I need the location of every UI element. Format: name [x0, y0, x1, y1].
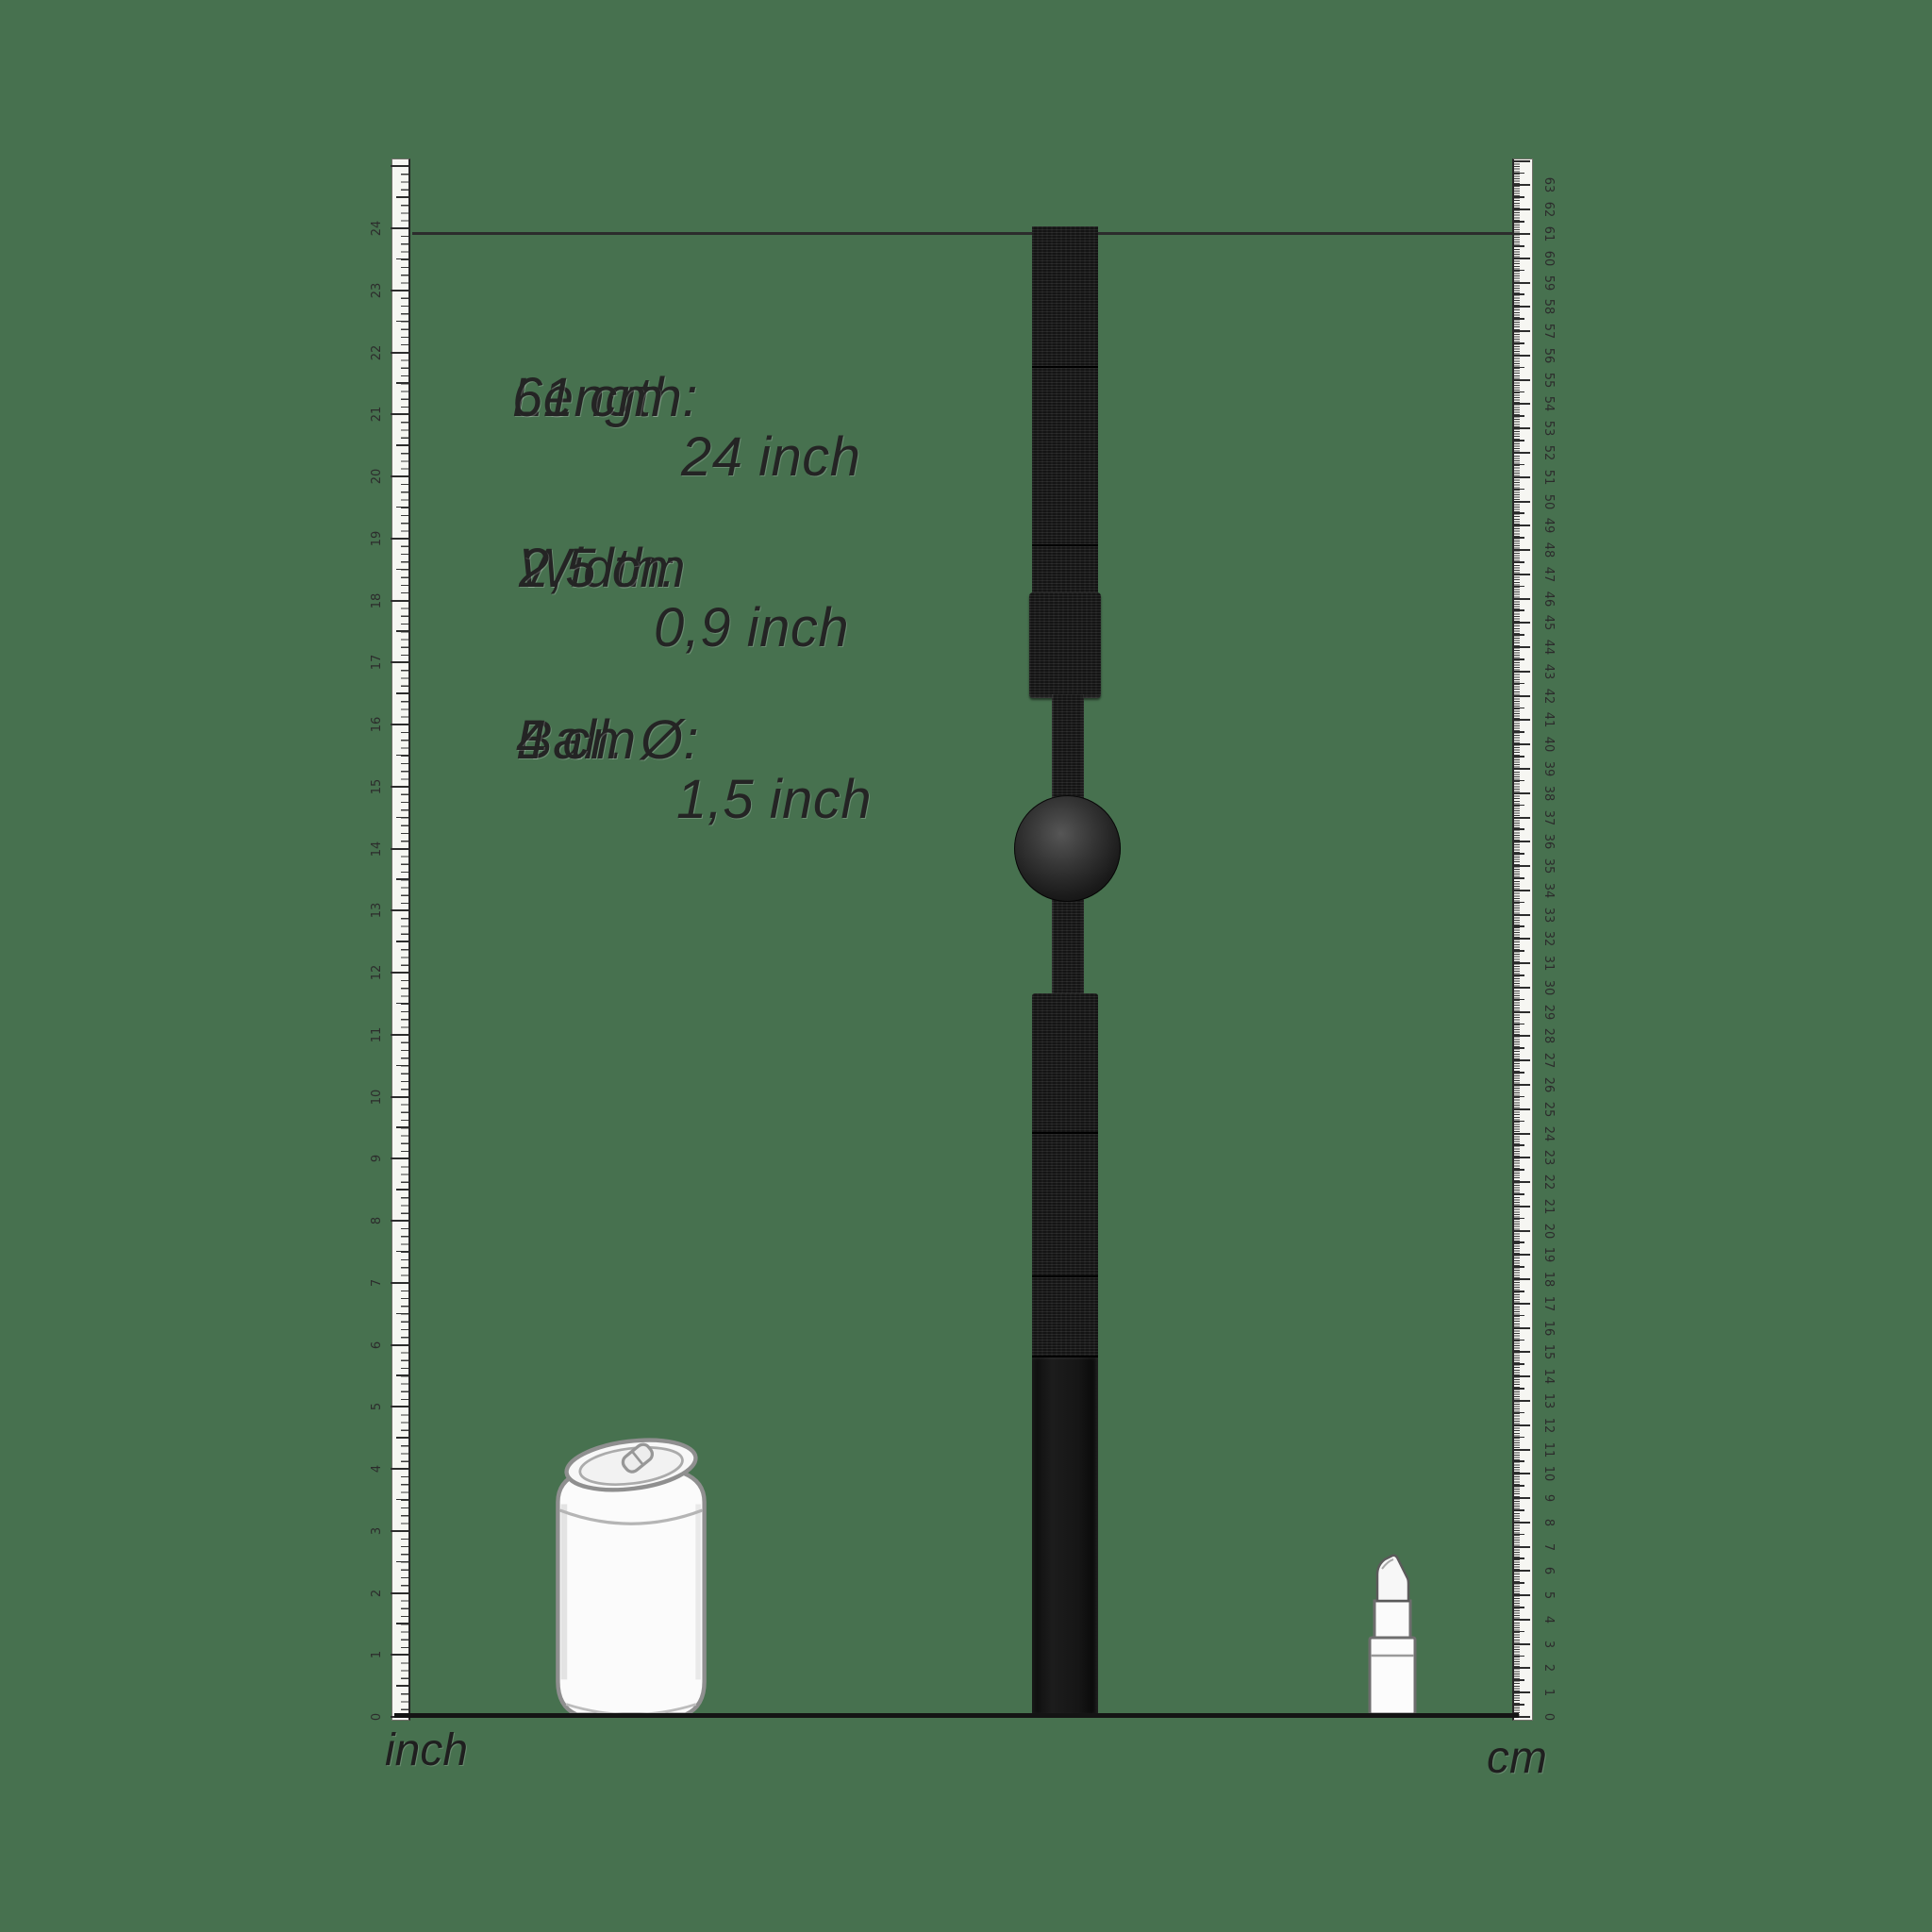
cm-halftick-3 [1514, 1631, 1524, 1633]
cm-halftick-59 [1514, 270, 1524, 272]
cm-ruler-number-10: 10 [1541, 1460, 1556, 1487]
cm-ruler-number-32: 32 [1541, 925, 1556, 952]
cm-tick-56 [1514, 355, 1530, 357]
cm-tick-41 [1514, 719, 1530, 721]
cm-ruler-number-29: 29 [1541, 999, 1556, 1025]
cm-ruler-number-39: 39 [1541, 756, 1556, 782]
cm-tick-27 [1514, 1059, 1530, 1061]
inch-halftick-2 [396, 1561, 408, 1563]
cm-halftick-14 [1514, 1363, 1524, 1365]
inch-halftick-15 [396, 755, 408, 757]
inch-tick-7 [391, 1282, 408, 1284]
inch-halftick-24 [396, 196, 408, 198]
cm-halftick-53 [1514, 415, 1524, 417]
inch-halftick-16 [396, 692, 408, 694]
inch-tick-24 [391, 227, 408, 229]
cm-tick-49 [1514, 525, 1530, 526]
cm-ruler-number-14: 14 [1541, 1363, 1556, 1390]
cm-tick-42 [1514, 695, 1530, 697]
cm-tick-57 [1514, 330, 1530, 332]
cm-halftick-12 [1514, 1412, 1524, 1414]
inch-ruler-number-8: 8 [370, 1207, 385, 1234]
inch-tick-16 [391, 724, 408, 725]
cm-tick-23 [1514, 1157, 1530, 1158]
inch-ruler-number-12: 12 [370, 959, 385, 986]
cm-ruler-number-18: 18 [1541, 1266, 1556, 1292]
cm-ruler-number-48: 48 [1541, 537, 1556, 563]
cm-tick-28 [1514, 1035, 1530, 1037]
cm-tick-22 [1514, 1181, 1530, 1183]
cm-tick-30 [1514, 987, 1530, 989]
cm-halftick-37 [1514, 805, 1524, 807]
cm-tick-12 [1514, 1424, 1530, 1426]
cm-tick-20 [1514, 1230, 1530, 1232]
cm-halftick-7 [1514, 1534, 1524, 1536]
length-guide-line-top [412, 232, 1512, 235]
cm-ruler-number-28: 28 [1541, 1023, 1556, 1049]
inch-ruler-number-15: 15 [370, 774, 385, 800]
inch-tick-2 [391, 1592, 408, 1594]
cm-ruler-number-47: 47 [1541, 561, 1556, 588]
cm-halftick-34 [1514, 877, 1524, 879]
cm-ruler-number-37: 37 [1541, 805, 1556, 831]
lipstick-inner-tube [1374, 1601, 1410, 1638]
cm-ruler-number-15: 15 [1541, 1339, 1556, 1365]
cm-halftick-63 [1514, 173, 1524, 175]
inch-ruler-number-11: 11 [370, 1022, 385, 1048]
lipstick-bullet [1377, 1556, 1408, 1601]
inch-halftick-17 [396, 630, 408, 632]
cm-tick-14 [1514, 1375, 1530, 1377]
cm-halftick-39 [1514, 756, 1524, 758]
inch-tick-6 [391, 1344, 408, 1346]
inch-halftick-1 [396, 1623, 408, 1624]
inch-ruler-number-23: 23 [370, 277, 385, 304]
inch-halftick-12 [396, 941, 408, 942]
inch-halftick-11 [396, 1003, 408, 1005]
cm-halftick-61 [1514, 221, 1524, 223]
cm-halftick-32 [1514, 925, 1524, 927]
cm-halftick-38 [1514, 780, 1524, 782]
cm-ruler-number-33: 33 [1541, 902, 1556, 928]
cm-ruler-number-31: 31 [1541, 950, 1556, 976]
cm-halftick-48 [1514, 537, 1524, 539]
cm-halftick-43 [1514, 658, 1524, 660]
cm-tick-26 [1514, 1084, 1530, 1086]
cm-ruler-number-6: 6 [1541, 1557, 1556, 1584]
cm-tick-54 [1514, 403, 1530, 405]
cm-tick-48 [1514, 549, 1530, 551]
cm-halftick-15 [1514, 1340, 1524, 1341]
inch-tick-15 [391, 786, 408, 788]
cm-halftick-42 [1514, 683, 1524, 685]
cm-tick-17 [1514, 1303, 1530, 1305]
cm-ruler-number-24: 24 [1541, 1121, 1556, 1147]
cm-halftick-40 [1514, 731, 1524, 733]
inch-halftick-4 [396, 1437, 408, 1439]
length-metric-value: 61 cm [512, 366, 663, 429]
cm-halftick-25 [1514, 1096, 1524, 1098]
inch-ruler-number-22: 22 [370, 340, 385, 366]
inch-halftick-21 [396, 382, 408, 384]
cm-tick-21 [1514, 1206, 1530, 1207]
inch-halftick-14 [396, 817, 408, 819]
inch-halftick-23 [396, 258, 408, 260]
cm-halftick-1 [1514, 1679, 1524, 1681]
inch-tick-20 [391, 475, 408, 477]
cm-tick-13 [1514, 1400, 1530, 1402]
cm-halftick-23 [1514, 1144, 1524, 1146]
inch-ruler-number-18: 18 [370, 588, 385, 614]
cm-tick-64 [1514, 160, 1530, 162]
cm-ruler-number-54: 54 [1541, 391, 1556, 417]
cm-tick-55 [1514, 379, 1530, 381]
cm-ruler-number-27: 27 [1541, 1047, 1556, 1074]
inch-tick-5 [391, 1406, 408, 1407]
cm-ruler-number-8: 8 [1541, 1509, 1556, 1536]
inch-ruler-number-21: 21 [370, 401, 385, 427]
cm-ruler-number-35: 35 [1541, 853, 1556, 879]
cm-tick-43 [1514, 671, 1530, 673]
inch-ruler-number-5: 5 [370, 1393, 385, 1420]
inch-tick-1 [391, 1654, 408, 1656]
cm-halftick-19 [1514, 1241, 1524, 1243]
cm-tick-33 [1514, 914, 1530, 916]
cm-ruler-number-1: 1 [1541, 1679, 1556, 1706]
cm-tick-60 [1514, 258, 1530, 259]
inch-tick-23 [391, 290, 408, 291]
inch-ruler-number-24: 24 [370, 215, 385, 241]
cm-halftick-8 [1514, 1509, 1524, 1511]
cm-tick-63 [1514, 184, 1530, 186]
strap-lower-segment-2 [1032, 1132, 1098, 1275]
cm-halftick-36 [1514, 828, 1524, 830]
cm-tick-59 [1514, 282, 1530, 284]
cm-halftick-60 [1514, 245, 1524, 247]
cm-tick-38 [1514, 792, 1530, 794]
cm-halftick-24 [1514, 1121, 1524, 1123]
cm-tick-44 [1514, 646, 1530, 648]
cm-ruler-number-49: 49 [1541, 512, 1556, 539]
width-metric-value: 2,5 cm [519, 537, 686, 600]
cm-tick-61 [1514, 233, 1530, 235]
inch-halftick-5 [396, 1374, 408, 1376]
cm-ruler-number-50: 50 [1541, 489, 1556, 515]
inch-halftick-6 [396, 1313, 408, 1315]
cm-tick-52 [1514, 452, 1530, 454]
cm-tick-47 [1514, 574, 1530, 575]
cm-ruler-number-60: 60 [1541, 245, 1556, 272]
cm-halftick-55 [1514, 367, 1524, 369]
inch-halftick-10 [396, 1065, 408, 1067]
inch-ruler-number-20: 20 [370, 463, 385, 490]
cm-tick-2 [1514, 1667, 1530, 1669]
lipstick [1364, 1554, 1421, 1716]
cm-tick-18 [1514, 1278, 1530, 1280]
inch-ruler-number-17: 17 [370, 649, 385, 675]
inch-tick-25 [391, 165, 408, 167]
cm-ruler-number-52: 52 [1541, 440, 1556, 466]
cm-ruler-number-51: 51 [1541, 464, 1556, 491]
cm-halftick-16 [1514, 1315, 1524, 1317]
cm-tick-16 [1514, 1327, 1530, 1329]
inch-tick-18 [391, 600, 408, 602]
inch-ruler-number-3: 3 [370, 1518, 385, 1544]
cm-tick-50 [1514, 501, 1530, 503]
inch-halftick-0 [396, 1685, 408, 1687]
cm-ruler-number-42: 42 [1541, 683, 1556, 709]
cm-halftick-2 [1514, 1656, 1524, 1657]
cm-tick-39 [1514, 768, 1530, 770]
cm-tick-40 [1514, 743, 1530, 745]
inch-ruler-number-16: 16 [370, 711, 385, 738]
cm-halftick-52 [1514, 440, 1524, 441]
strap-lower-segment-1 [1032, 993, 1098, 1132]
cm-ruler-number-59: 59 [1541, 270, 1556, 296]
cm-halftick-31 [1514, 950, 1524, 952]
cm-ruler-number-58: 58 [1541, 293, 1556, 320]
inch-ruler-number-1: 1 [370, 1641, 385, 1668]
inch-halftick-7 [396, 1251, 408, 1253]
inch-tick-11 [391, 1034, 408, 1036]
cm-ruler-number-41: 41 [1541, 707, 1556, 733]
inch-tick-17 [391, 661, 408, 663]
inch-ruler-number-9: 9 [370, 1145, 385, 1172]
cm-ruler-number-11: 11 [1541, 1437, 1556, 1463]
cm-ruler-number-46: 46 [1541, 586, 1556, 612]
cm-halftick-49 [1514, 512, 1524, 514]
cm-tick-7 [1514, 1546, 1530, 1548]
cm-halftick-33 [1514, 902, 1524, 904]
inch-tick-12 [391, 972, 408, 974]
inch-tick-14 [391, 848, 408, 850]
cm-halftick-27 [1514, 1047, 1524, 1049]
strap-lower-segment-3 [1032, 1275, 1098, 1356]
cm-tick-6 [1514, 1570, 1530, 1572]
cm-ruler-number-0: 0 [1541, 1704, 1556, 1730]
cm-ruler-number-3: 3 [1541, 1631, 1556, 1657]
cm-halftick-57 [1514, 318, 1524, 320]
cm-ruler-number-45: 45 [1541, 609, 1556, 636]
inch-tick-21 [391, 413, 408, 415]
cm-ruler-number-56: 56 [1541, 342, 1556, 369]
cm-tick-45 [1514, 622, 1530, 624]
lipstick-base-tube [1370, 1638, 1415, 1714]
cm-halftick-56 [1514, 342, 1524, 344]
strap-upper-segment-2 [1032, 366, 1098, 544]
cm-halftick-41 [1514, 708, 1524, 709]
cm-ruler-number-62: 62 [1541, 196, 1556, 223]
cm-halftick-45 [1514, 609, 1524, 611]
cm-halftick-21 [1514, 1193, 1524, 1195]
cm-ruler-number-26: 26 [1541, 1072, 1556, 1098]
cm-ruler-number-7: 7 [1541, 1534, 1556, 1560]
cm-halftick-5 [1514, 1582, 1524, 1584]
thin-strap-below-ball [1052, 899, 1084, 997]
cm-ruler-number-30: 30 [1541, 974, 1556, 1001]
cm-ruler-number-2: 2 [1541, 1655, 1556, 1681]
cm-halftick-50 [1514, 489, 1524, 491]
cm-tick-4 [1514, 1619, 1530, 1621]
inch-ruler-number-13: 13 [370, 897, 385, 924]
cm-halftick-17 [1514, 1291, 1524, 1292]
cm-halftick-18 [1514, 1266, 1524, 1268]
baseline [394, 1713, 1519, 1718]
can-body [558, 1474, 704, 1715]
cm-ruler-number-38: 38 [1541, 780, 1556, 807]
cm-ruler-number-36: 36 [1541, 828, 1556, 855]
cm-halftick-46 [1514, 586, 1524, 588]
cm-tick-31 [1514, 962, 1530, 964]
cm-halftick-11 [1514, 1437, 1524, 1439]
inch-halftick-9 [396, 1126, 408, 1128]
inch-tick-10 [391, 1096, 408, 1098]
inch-ruler-number-19: 19 [370, 525, 385, 552]
cm-halftick-62 [1514, 196, 1524, 198]
cm-unit-label: cm [1487, 1732, 1547, 1784]
cm-tick-19 [1514, 1254, 1530, 1256]
inch-halftick-18 [396, 569, 408, 571]
cm-ruler-number-5: 5 [1541, 1582, 1556, 1608]
inch-unit-label: inch [385, 1724, 468, 1776]
soda-can [543, 1422, 719, 1731]
cm-halftick-6 [1514, 1557, 1524, 1559]
cm-tick-25 [1514, 1108, 1530, 1110]
cm-tick-29 [1514, 1011, 1530, 1013]
inch-halftick-19 [396, 507, 408, 508]
strap-lower-leather-end [1032, 1356, 1098, 1715]
cm-tick-9 [1514, 1497, 1530, 1499]
cm-tick-35 [1514, 865, 1530, 867]
cm-halftick-54 [1514, 391, 1524, 393]
gag-ball [1014, 795, 1121, 902]
cm-tick-51 [1514, 476, 1530, 478]
inch-tick-22 [391, 352, 408, 354]
inch-halftick-20 [396, 444, 408, 446]
cm-tick-24 [1514, 1133, 1530, 1135]
cm-ruler-number-43: 43 [1541, 658, 1556, 685]
ball-diameter-imperial-value: 1,5 inch [676, 768, 872, 831]
cm-halftick-47 [1514, 561, 1524, 563]
cm-halftick-58 [1514, 293, 1524, 295]
cm-halftick-30 [1514, 974, 1524, 976]
inch-ruler-number-6: 6 [370, 1332, 385, 1358]
inch-halftick-13 [396, 878, 408, 880]
cm-halftick-13 [1514, 1388, 1524, 1390]
cm-halftick-26 [1514, 1072, 1524, 1074]
inch-halftick-22 [396, 321, 408, 323]
cm-tick-62 [1514, 208, 1530, 210]
cm-tick-46 [1514, 598, 1530, 600]
length-imperial-value: 24 inch [681, 425, 861, 489]
cm-tick-11 [1514, 1449, 1530, 1451]
cm-ruler-number-61: 61 [1541, 221, 1556, 247]
cm-tick-8 [1514, 1522, 1530, 1524]
inch-ruler-number-4: 4 [370, 1456, 385, 1482]
inch-tick-9 [391, 1158, 408, 1159]
cm-tick-53 [1514, 427, 1530, 429]
inch-tick-8 [391, 1220, 408, 1222]
cm-tick-5 [1514, 1594, 1530, 1596]
cm-ruler-number-25: 25 [1541, 1096, 1556, 1123]
width-imperial-value: 0,9 inch [654, 596, 849, 659]
cm-ruler-number-4: 4 [1541, 1607, 1556, 1633]
inch-ruler-number-10: 10 [370, 1084, 385, 1110]
cm-ruler-number-16: 16 [1541, 1315, 1556, 1341]
cm-tick-10 [1514, 1473, 1530, 1474]
cm-ruler-number-40: 40 [1541, 731, 1556, 758]
cm-tick-1 [1514, 1691, 1530, 1693]
cm-ruler-number-19: 19 [1541, 1241, 1556, 1268]
strap-adjuster-sleeve [1029, 592, 1101, 698]
cm-halftick-51 [1514, 464, 1524, 466]
cm-ruler-number-23: 23 [1541, 1144, 1556, 1171]
inch-tick-4 [391, 1468, 408, 1470]
cm-ruler-number-55: 55 [1541, 367, 1556, 393]
cm-tick-37 [1514, 817, 1530, 819]
inch-ruler-number-2: 2 [370, 1580, 385, 1607]
cm-halftick-35 [1514, 853, 1524, 855]
thin-strap-above-ball [1052, 694, 1084, 798]
cm-halftick-22 [1514, 1169, 1524, 1171]
inch-halftick-8 [396, 1189, 408, 1191]
cm-halftick-10 [1514, 1460, 1524, 1462]
cm-tick-36 [1514, 841, 1530, 842]
cm-halftick-0 [1514, 1704, 1524, 1706]
cm-ruler-number-21: 21 [1541, 1193, 1556, 1220]
cm-ruler-number-57: 57 [1541, 318, 1556, 344]
inch-ruler-number-7: 7 [370, 1270, 385, 1296]
cm-ruler-number-22: 22 [1541, 1169, 1556, 1195]
cm-ruler-number-17: 17 [1541, 1291, 1556, 1317]
inch-tick-13 [391, 909, 408, 911]
cm-ruler-number-53: 53 [1541, 415, 1556, 441]
cm-tick-32 [1514, 938, 1530, 940]
strap-upper-segment-1 [1032, 226, 1098, 366]
inch-tick-3 [391, 1530, 408, 1532]
cm-halftick-4 [1514, 1607, 1524, 1608]
inch-ruler-number-14: 14 [370, 836, 385, 862]
inch-tick-19 [391, 538, 408, 540]
cm-halftick-44 [1514, 634, 1524, 636]
cm-halftick-29 [1514, 999, 1524, 1001]
cm-ruler-number-34: 34 [1541, 877, 1556, 904]
ball-diameter-metric-value: 4 cm [516, 708, 637, 772]
cm-ruler-number-44: 44 [1541, 634, 1556, 660]
cm-ruler-number-13: 13 [1541, 1388, 1556, 1414]
cm-tick-58 [1514, 306, 1530, 308]
cm-ruler-number-63: 63 [1541, 172, 1556, 198]
cm-halftick-20 [1514, 1218, 1524, 1220]
strap-upper-segment-3 [1032, 544, 1098, 596]
cm-tick-34 [1514, 890, 1530, 891]
cm-ruler-number-20: 20 [1541, 1218, 1556, 1244]
product-dimension-diagram: 0123456789101112131415161718192021222324… [0, 0, 1932, 1932]
cm-tick-15 [1514, 1351, 1530, 1353]
cm-halftick-9 [1514, 1485, 1524, 1487]
cm-ruler-number-12: 12 [1541, 1412, 1556, 1439]
cm-ruler-number-9: 9 [1541, 1485, 1556, 1511]
cm-halftick-28 [1514, 1024, 1524, 1025]
inch-halftick-3 [396, 1499, 408, 1501]
cm-tick-3 [1514, 1643, 1530, 1645]
inch-ruler-number-0: 0 [370, 1704, 385, 1730]
